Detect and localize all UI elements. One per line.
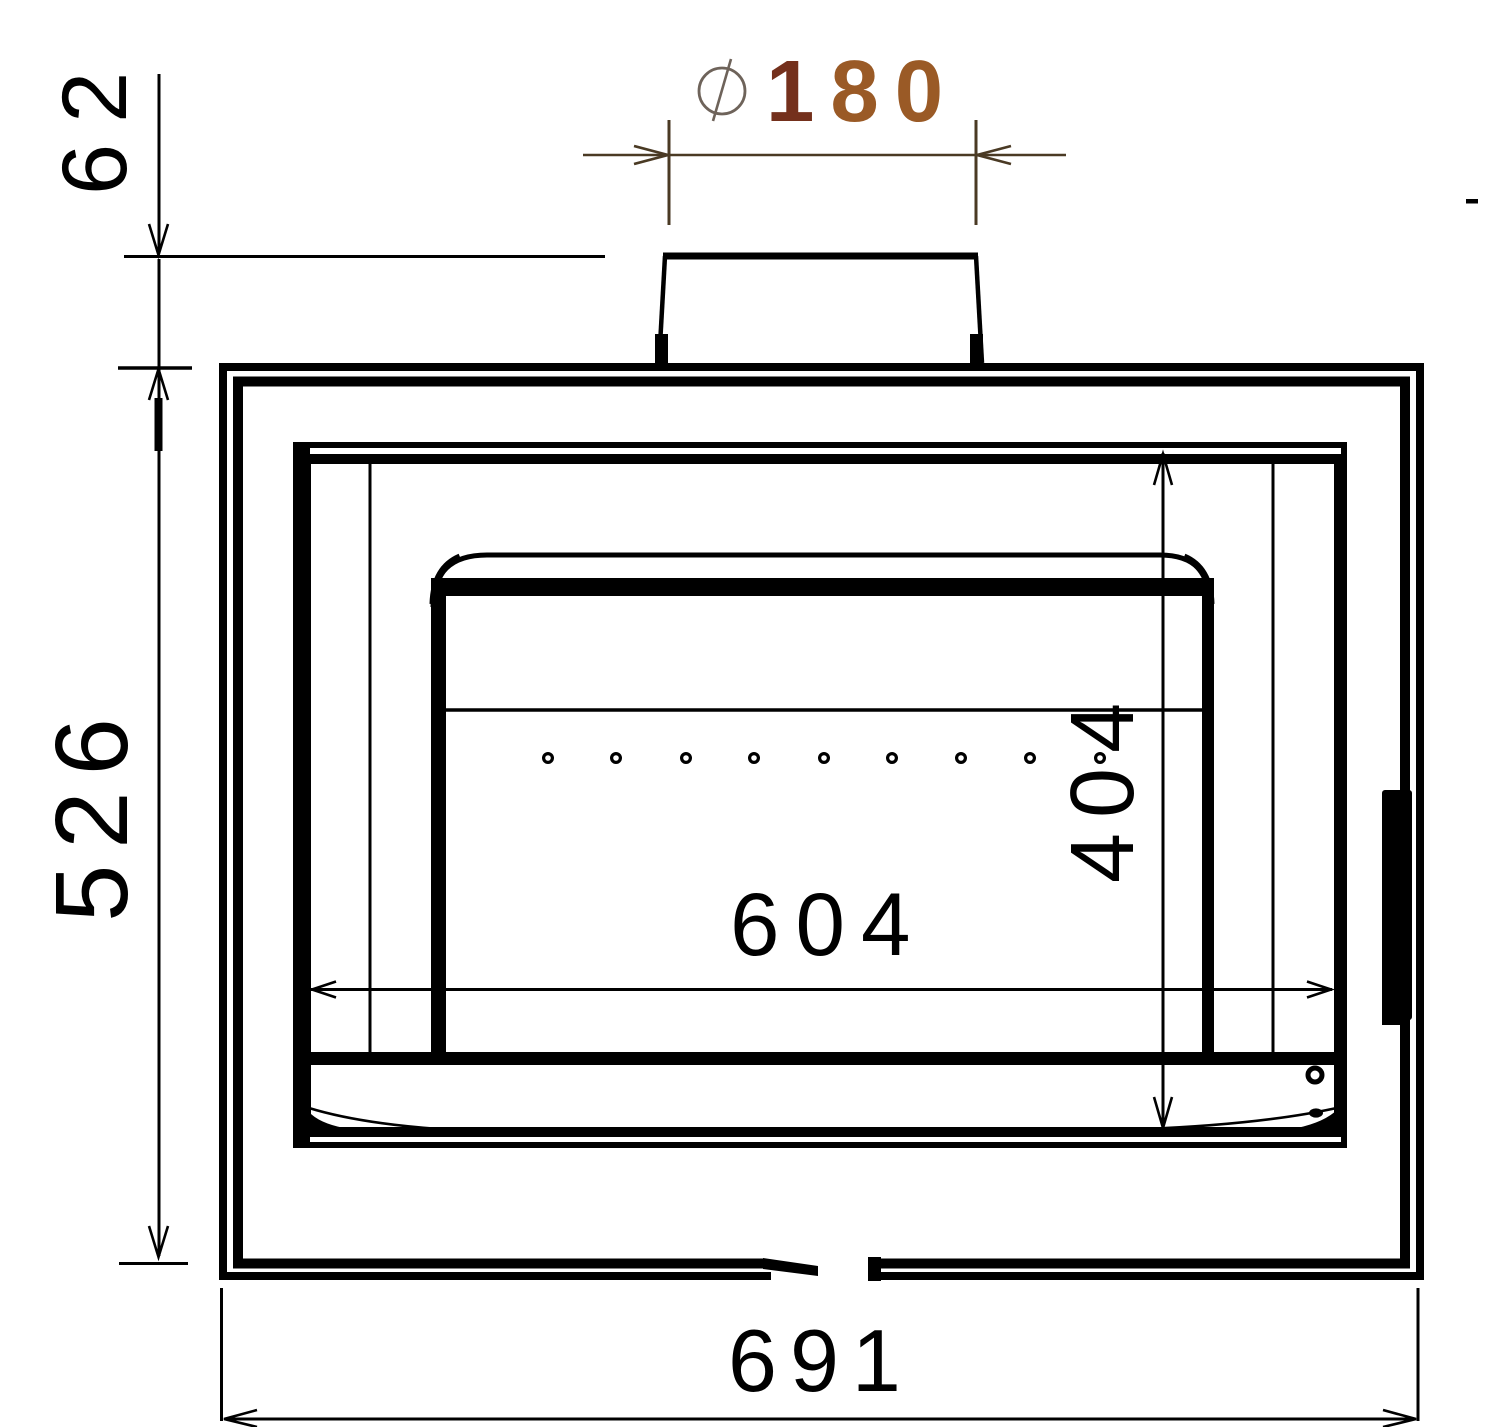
- svg-text:180: 180: [766, 43, 959, 140]
- svg-text:404: 404: [1053, 688, 1153, 883]
- svg-text:691: 691: [728, 1311, 914, 1410]
- svg-text:604: 604: [730, 874, 927, 974]
- svg-text:526: 526: [34, 702, 149, 922]
- svg-text:62: 62: [44, 51, 146, 195]
